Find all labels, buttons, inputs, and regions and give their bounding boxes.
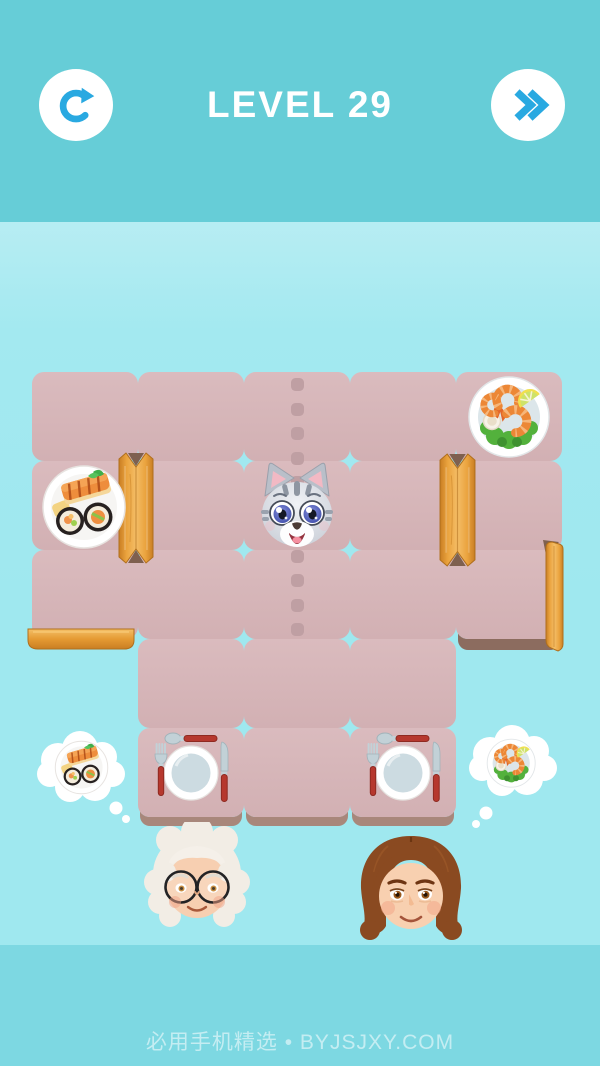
skip-forward-icon bbox=[505, 84, 551, 126]
path-dot bbox=[291, 427, 304, 440]
sushi-plate-piece[interactable] bbox=[41, 464, 127, 550]
path-dot bbox=[291, 378, 304, 391]
board-tile bbox=[350, 550, 456, 639]
path-dot bbox=[291, 574, 304, 587]
board-tile bbox=[350, 728, 456, 817]
board-tile bbox=[244, 639, 350, 728]
watermark-text: 必用手机精选 • BYJSJXY.COM bbox=[0, 1026, 600, 1056]
path-dot bbox=[291, 403, 304, 416]
game-screen: LEVEL 29 bbox=[0, 0, 600, 1066]
board-tile bbox=[32, 550, 138, 639]
path-dot bbox=[291, 599, 304, 612]
board-tile bbox=[350, 639, 456, 728]
character-grandma bbox=[142, 822, 252, 934]
board-tile bbox=[456, 550, 562, 639]
board-tile bbox=[350, 461, 456, 550]
board-tile bbox=[138, 461, 244, 550]
board-tile bbox=[456, 461, 562, 550]
board-tile bbox=[138, 639, 244, 728]
board-tile bbox=[244, 728, 350, 817]
cat-piece[interactable] bbox=[252, 458, 342, 552]
header-bar: LEVEL 29 bbox=[0, 0, 600, 222]
skip-level-button[interactable] bbox=[491, 69, 565, 141]
shrimp-plate-piece[interactable] bbox=[467, 375, 551, 459]
board-tile bbox=[138, 372, 244, 461]
path-dot bbox=[291, 623, 304, 636]
character-woman bbox=[348, 830, 474, 948]
board-tile bbox=[32, 372, 138, 461]
board-tile bbox=[350, 372, 456, 461]
board-tile bbox=[138, 728, 244, 817]
board-tile bbox=[138, 550, 244, 639]
